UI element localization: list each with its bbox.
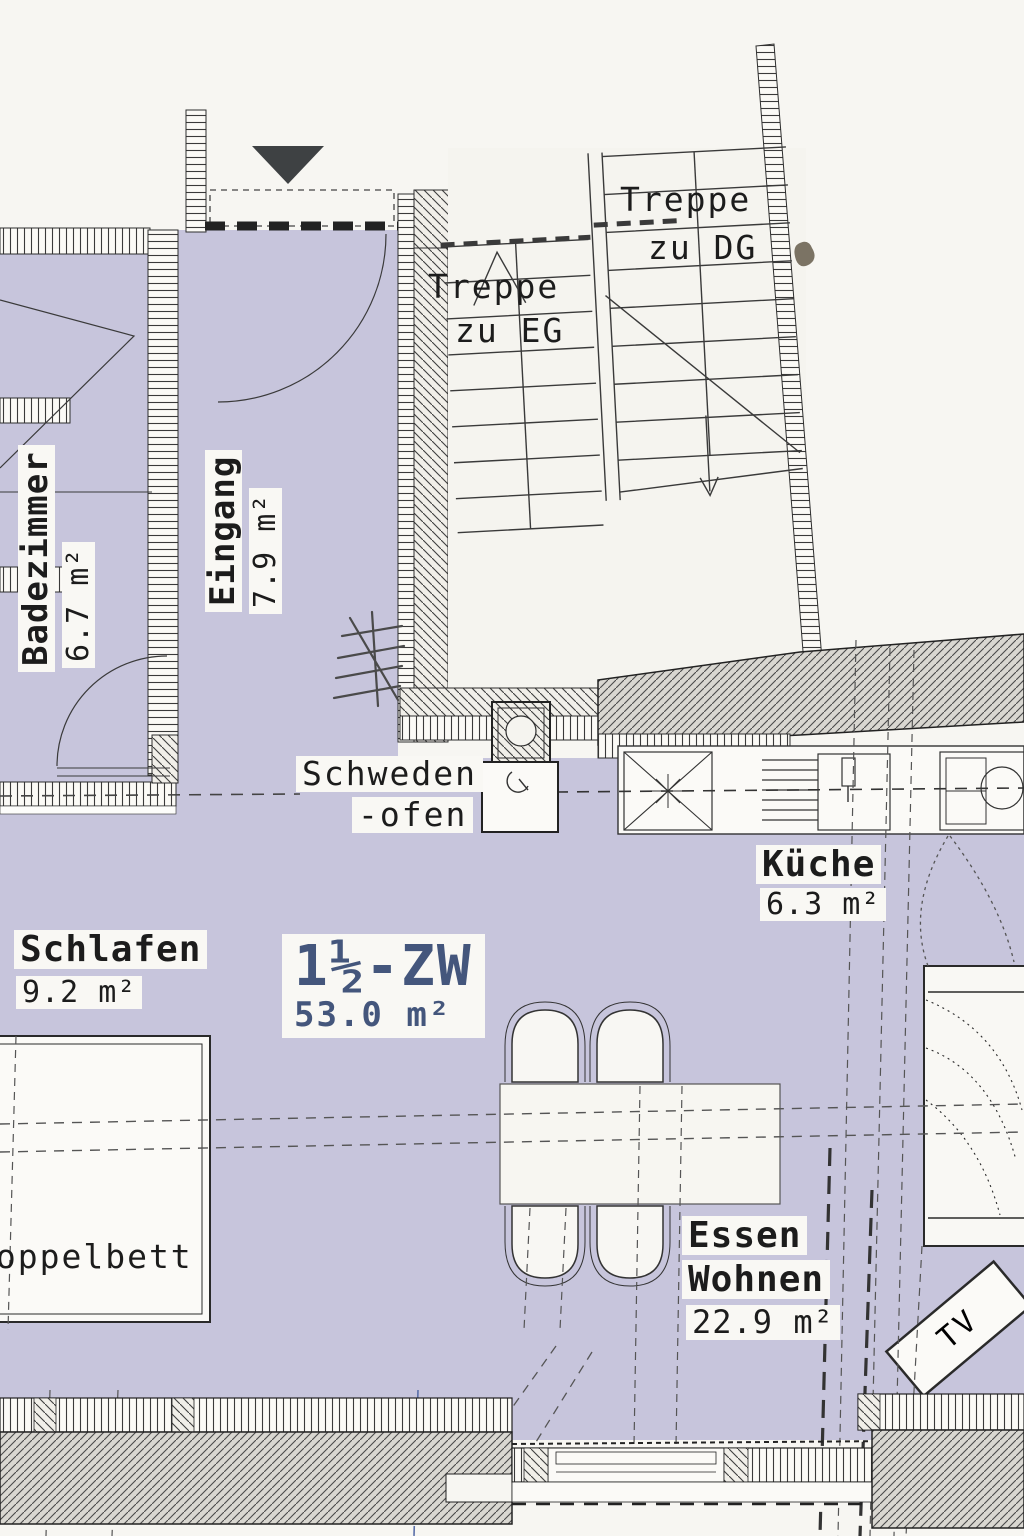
room-label-eingang: Eingang xyxy=(205,450,242,612)
room-area-schlafen: 9.2 m² xyxy=(16,976,142,1009)
stove-label-line1: Schweden xyxy=(296,756,483,792)
bed-label: Doppelbett xyxy=(0,1240,193,1274)
floorplan-page: Badezimmer 6.7 m² Eingang 7.9 m² Treppe … xyxy=(0,0,1024,1536)
room-area-badezimmer: 6.7 m² xyxy=(62,542,95,668)
unit-type-label: 1½-ZW xyxy=(294,938,473,996)
stairs-label-eg-line2: zu EG xyxy=(455,314,564,348)
room-label-wohnen: Wohnen xyxy=(682,1260,830,1299)
kitchen-counter xyxy=(556,746,1024,834)
stairs-label-dg-line2: zu DG xyxy=(648,231,757,265)
unit-title: 1½-ZW 53.0 m² xyxy=(282,934,485,1038)
stairs-label-dg-line1: Treppe xyxy=(620,183,751,217)
stairs-label-eg-line1: Treppe xyxy=(428,270,559,304)
room-label-essen: Essen xyxy=(682,1216,807,1255)
floorplan-drawing xyxy=(0,0,1024,1536)
room-area-eingang: 7.9 m² xyxy=(249,488,282,614)
room-label-schlafen: Schlafen xyxy=(14,930,207,969)
unit-area-label: 53.0 m² xyxy=(294,998,473,1033)
room-area-essen-wohnen: 22.9 m² xyxy=(686,1305,840,1340)
double-bed xyxy=(0,1036,210,1322)
stove-label-line2: -ofen xyxy=(352,797,473,833)
room-label-badezimmer: Badezimmer xyxy=(18,445,55,672)
room-label-kueche: Küche xyxy=(756,845,881,884)
room-name: Badezimmer xyxy=(18,445,55,672)
room-area-kueche: 6.3 m² xyxy=(760,888,886,921)
